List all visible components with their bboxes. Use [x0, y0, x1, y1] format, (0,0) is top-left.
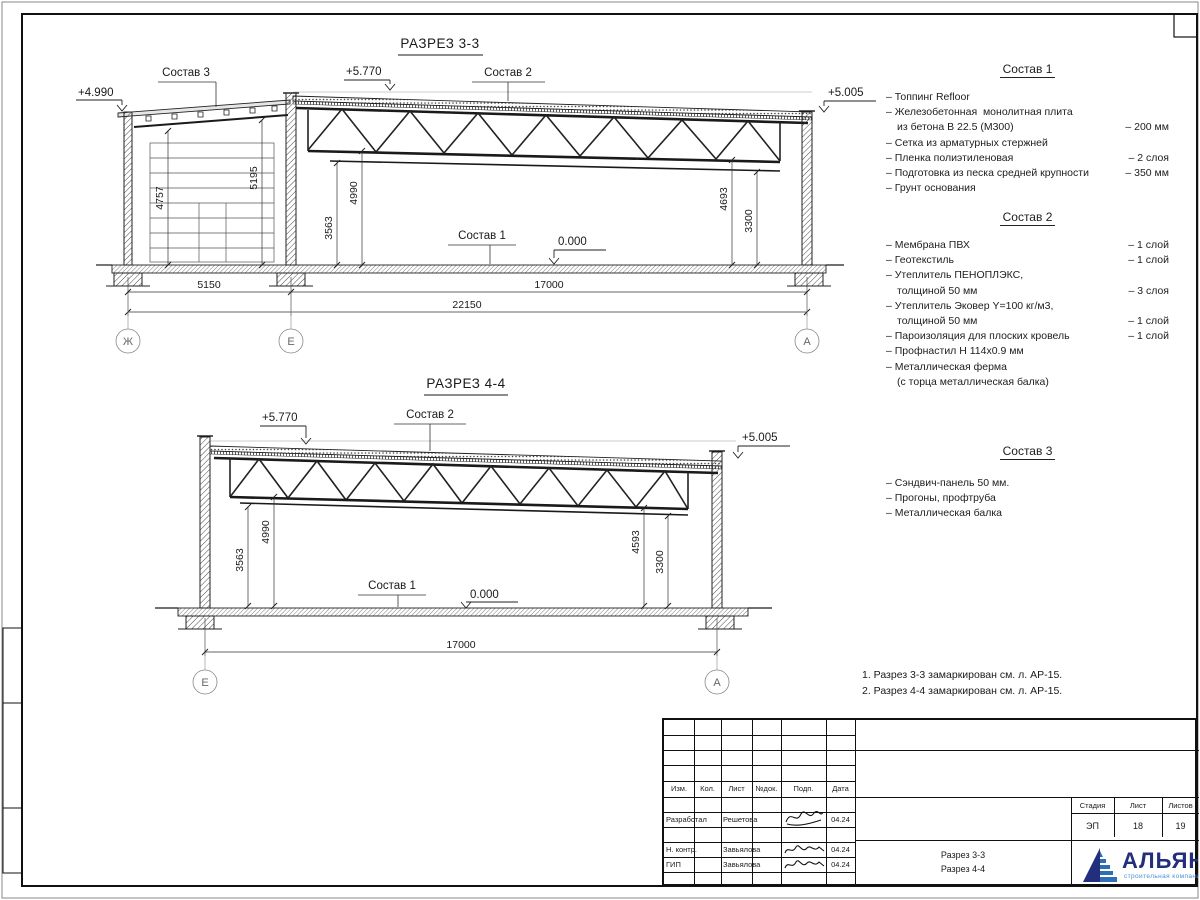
tb-header-podp: Подп. [781, 784, 826, 793]
tb-doc-name-1: Разрез 3-3 [855, 848, 1071, 862]
composition-item: – Сетка из арматурных стержней [886, 136, 1169, 151]
tb-date: 04.24 [826, 845, 855, 854]
section-3-3-drawing: РАЗРЕЗ 3-3 [76, 36, 876, 353]
dim-label: 22150 [452, 299, 481, 311]
svg-text:+5.770: +5.770 [346, 66, 382, 78]
level-mark-5005: +5.005 [819, 87, 876, 112]
tb-name: Завьялова [723, 860, 779, 869]
tb-listov-value: 19 [1162, 819, 1199, 833]
svg-text:+5.005: +5.005 [742, 432, 778, 444]
composition-item: (с торца металлическая балка) [886, 375, 1169, 390]
axis-bubbles [193, 656, 729, 694]
sheet-notes: 1. Разрез 3-3 замаркирован см. л. АР-15.… [862, 668, 1062, 699]
level-mark-0000: 0.000 [461, 589, 518, 608]
drawing-sheet: РАЗРЕЗ 3-3 [0, 0, 1200, 900]
composition-title: Состав 3 [886, 444, 1169, 458]
callout-sostav2: Состав 2 [394, 409, 466, 451]
section-4-4-title: РАЗРЕЗ 4-4 [426, 376, 505, 391]
composition-title: Состав 1 [886, 62, 1169, 76]
tb-stage-label: Стадия [1071, 801, 1114, 810]
signature [783, 806, 825, 828]
dim-label: 17000 [446, 639, 475, 651]
truss-bottom-chord [308, 151, 780, 162]
svg-text:+5.005: +5.005 [828, 87, 864, 99]
company-subtitle: строительная компания [1124, 873, 1198, 880]
signature [783, 842, 825, 857]
composition-item: – Сэндвич-панель 50 мм. [886, 476, 1169, 491]
tb-role: Разработал [666, 815, 720, 824]
tb-header-data: Дата [826, 784, 855, 793]
level-mark-5005: +5.005 [733, 432, 790, 458]
tb-role: ГИП [666, 860, 720, 869]
composition-item: – Железобетонная монолитная плита [886, 105, 1169, 120]
dim-label: 3563 [323, 216, 335, 240]
axis-label: Е [201, 677, 208, 689]
tb-date: 04.24 [826, 860, 855, 869]
tb-date: 04.24 [826, 815, 855, 824]
svg-text:0.000: 0.000 [470, 589, 499, 601]
tb-stage-value: ЭП [1071, 819, 1114, 833]
tb-name: Завьялова [723, 845, 779, 854]
level-mark-5770: +5.770 [344, 66, 395, 90]
composition-item: – Подготовка из песка средней крупности–… [886, 166, 1169, 181]
callout-sostav3: Состав 3 [158, 67, 216, 107]
horizontal-dimensions: 17000 [202, 618, 720, 656]
composition-item: – Утеплитель ПЕНОПЛЭКС, [886, 268, 1169, 283]
composition-item: – Грунт основания [886, 181, 1169, 196]
dim-label: 4693 [718, 187, 730, 211]
dim-label: 5150 [197, 279, 221, 291]
composition-title: Состав 2 [886, 210, 1169, 224]
svg-text:Состав 2: Состав 2 [484, 67, 532, 79]
company-name: АЛЬЯНС [1122, 848, 1198, 874]
tb-header-izm: Изм. [664, 784, 694, 793]
logo-pyramid-icon [1080, 845, 1120, 885]
dim-label: 3563 [234, 548, 246, 572]
dim-label: 4990 [348, 181, 360, 205]
tb-listov-label: Листов [1162, 801, 1199, 810]
dim-label: 3300 [743, 209, 755, 233]
frame-corner-box [1174, 14, 1197, 37]
composition-item: – Топпинг Refloor [886, 90, 1169, 105]
dim-label: 4757 [154, 186, 166, 210]
svg-text:Состав 2: Состав 2 [406, 409, 454, 421]
tb-doc-name-2: Разрез 4-4 [855, 862, 1071, 876]
composition-item: – Прогоны, профтруба [886, 491, 1169, 506]
composition-item: – Профнастил Н 114х0.9 мм [886, 344, 1169, 359]
composition-item: – Металлическая балка [886, 506, 1169, 521]
svg-text:+5.770: +5.770 [262, 412, 298, 424]
composition-list-1: Состав 1 – Топпинг Refloor – Железобетон… [886, 62, 1169, 196]
svg-text:Состав 1: Состав 1 [368, 580, 416, 592]
level-mark-4990: +4.990 [76, 87, 127, 111]
vertical-dimensions: 3563 4990 4593 3300 [234, 494, 671, 609]
callout-sostav1: Состав 1 [448, 230, 516, 264]
axis-label: А [713, 677, 721, 689]
composition-list-2: Состав 2 – Мембрана ПВХ– 1 слой – Геотек… [886, 210, 1169, 390]
tb-role: Н. контр. [666, 845, 720, 854]
tb-name: Решетова [723, 815, 779, 824]
composition-item: – Геотекстиль– 1 слой [886, 253, 1169, 268]
section-3-3-title: РАЗРЕЗ 3-3 [400, 36, 479, 51]
callout-sostav2: Состав 2 [472, 67, 545, 101]
composition-item: – Пленка полиэтиленовая– 2 слоя [886, 151, 1169, 166]
metal-beam [330, 161, 780, 171]
level-mark-5770: +5.770 [260, 412, 311, 444]
rack-section [150, 143, 274, 262]
composition-item: – Утеплитель Эковер Y=100 кг/м3, [886, 299, 1169, 314]
axis-label: Ж [123, 336, 133, 348]
annex-roof [118, 100, 290, 127]
dim-label: 5195 [248, 166, 260, 190]
composition-item: толщиной 50 мм– 3 слоя [886, 284, 1169, 299]
svg-text:+4.990: +4.990 [78, 87, 114, 99]
tb-list-label: Лист [1114, 801, 1162, 810]
svg-text:Состав 1: Состав 1 [458, 230, 506, 242]
floor-slab [155, 608, 772, 629]
signature [783, 857, 825, 872]
composition-item: – Пароизоляция для плоских кровель– 1 сл… [886, 329, 1169, 344]
note-line: 1. Разрез 3-3 замаркирован см. л. АР-15. [862, 668, 1062, 684]
frame-side-boxes [3, 628, 22, 873]
svg-text:0.000: 0.000 [558, 236, 587, 248]
composition-item: из бетона В 22.5 (М300)– 200 мм [886, 120, 1169, 135]
axis-label: Е [287, 336, 294, 348]
tb-header-ndok: №док. [752, 784, 781, 793]
tb-list-value: 18 [1114, 819, 1162, 833]
callout-sostav1: Состав 1 [358, 580, 426, 607]
dim-label: 3300 [654, 550, 666, 574]
composition-item: толщиной 50 мм– 1 слой [886, 314, 1169, 329]
note-line: 2. Разрез 4-4 замаркирован см. л. АР-15. [862, 684, 1062, 700]
tb-header-list: Лист [721, 784, 752, 793]
dim-label: 4593 [630, 530, 642, 554]
composition-list-3: Состав 3 – Сэндвич-панель 50 мм. – Прого… [886, 444, 1169, 522]
composition-item: – Металлическая ферма [886, 360, 1169, 375]
level-mark-0000: 0.000 [549, 236, 606, 264]
svg-text:Состав 3: Состав 3 [162, 67, 210, 79]
composition-item: – Мембрана ПВХ– 1 слой [886, 238, 1169, 253]
dim-label: 17000 [534, 279, 563, 291]
axis-label: А [803, 336, 811, 348]
title-block: Изм. Кол. Лист №док. Подп. Дата Разработ… [662, 718, 1197, 886]
section-4-4-drawing: РАЗРЕЗ 4-4 [155, 376, 790, 694]
dim-label: 4990 [260, 520, 272, 544]
metal-beam [240, 503, 688, 515]
company-logo: АЛЬЯНС строительная компания [1072, 841, 1198, 886]
tb-header-kol: Кол. [694, 784, 721, 793]
horizontal-dimensions: 5150 17000 22150 [125, 277, 810, 316]
